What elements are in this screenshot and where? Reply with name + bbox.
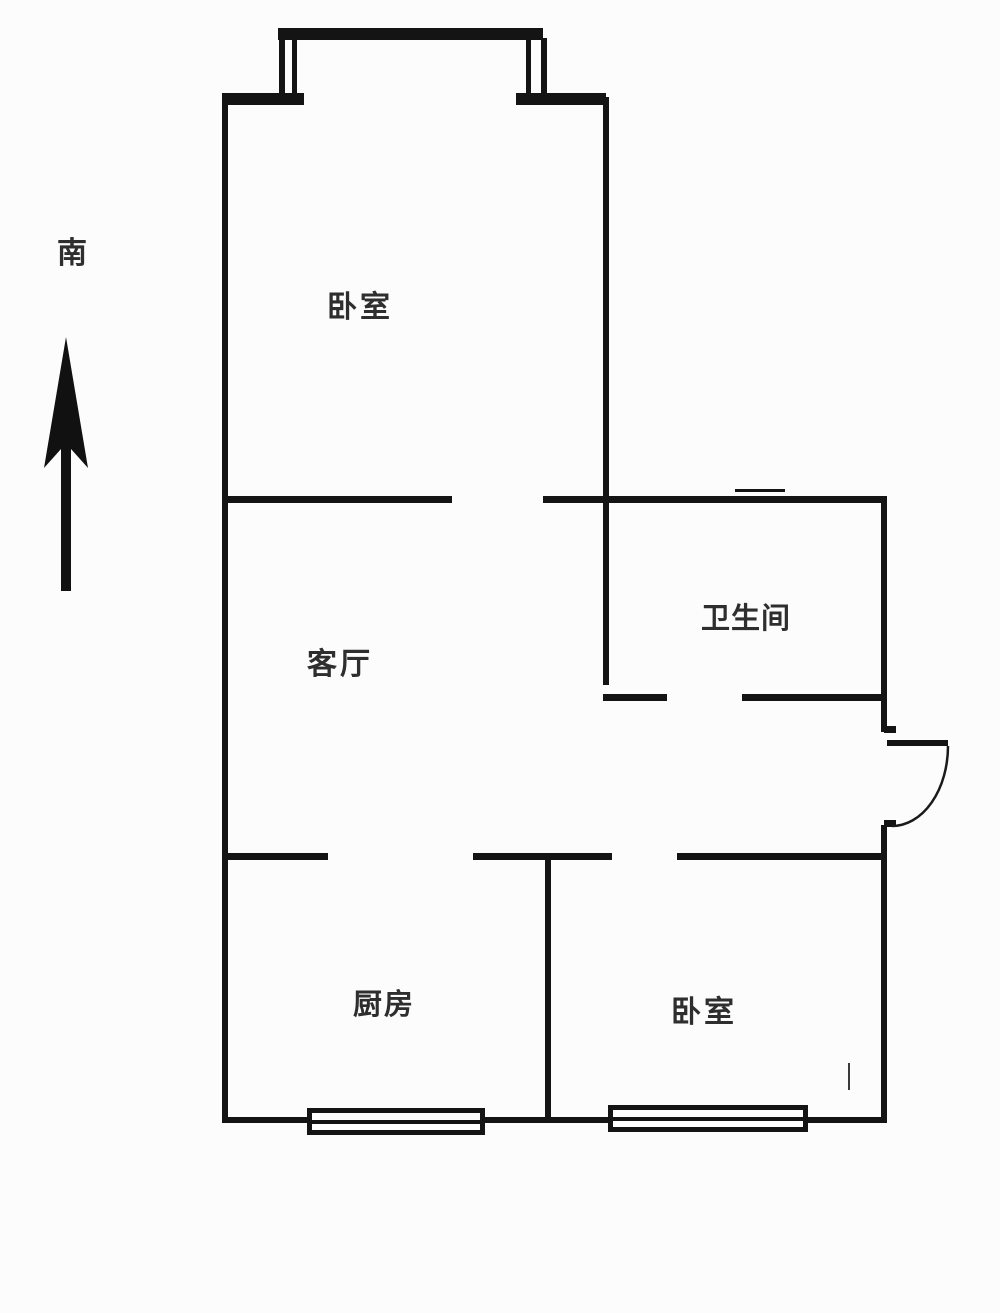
wall-right-exterior-lower bbox=[881, 825, 887, 1123]
wall-bay-right-inner bbox=[526, 38, 531, 96]
wall-bedroom-right bbox=[603, 97, 609, 685]
compass-south-label: 南 bbox=[57, 228, 87, 272]
entry-door-frame-bottom bbox=[884, 820, 896, 827]
entry-door-frame-top bbox=[884, 726, 896, 733]
entry-door-leaf bbox=[887, 740, 948, 746]
room-label-living-room: 客厅 bbox=[307, 639, 373, 683]
wall-bathroom-bottom-left bbox=[603, 694, 667, 701]
wall-bay-right-outer bbox=[541, 38, 547, 96]
window-mullion bbox=[312, 1120, 480, 1124]
entry-door-swing-arc bbox=[892, 746, 948, 826]
wall-bay-left-inner bbox=[292, 38, 297, 96]
room-label-kitchen: 厨房 bbox=[353, 981, 415, 1023]
wall-bathroom-window-mark bbox=[735, 489, 785, 492]
scan-tick-mark bbox=[848, 1063, 850, 1090]
wall-mid-left-segment bbox=[222, 496, 452, 503]
window-mullion bbox=[613, 1117, 803, 1121]
wall-bedroom-top-right bbox=[516, 93, 606, 105]
room-label-bedroom-top: 卧室 bbox=[327, 282, 393, 326]
room-label-bathroom: 卫生间 bbox=[701, 595, 791, 637]
wall-bedroom2-top bbox=[677, 853, 887, 860]
room-label-bedroom-bottom: 卧室 bbox=[671, 987, 737, 1031]
wall-kitchen-bedroom-divider bbox=[545, 857, 551, 1120]
wall-bathroom-bottom-right bbox=[742, 694, 887, 701]
wall-kitchen-top-mid bbox=[473, 853, 612, 860]
wall-left-exterior bbox=[222, 97, 228, 1123]
window-symbol-bedroom bbox=[608, 1105, 808, 1132]
floor-plan: 南 卧室 客厅 卫生间 厨房 卧室 bbox=[0, 0, 1000, 1313]
wall-bay-window-top bbox=[278, 28, 543, 40]
wall-kitchen-top-left bbox=[222, 853, 328, 860]
wall-bedroom-top-left bbox=[222, 93, 304, 105]
wall-bay-left-outer bbox=[279, 38, 285, 96]
window-symbol-kitchen bbox=[307, 1108, 485, 1135]
wall-bathroom-top bbox=[543, 496, 887, 503]
south-arrow-icon bbox=[44, 337, 88, 591]
